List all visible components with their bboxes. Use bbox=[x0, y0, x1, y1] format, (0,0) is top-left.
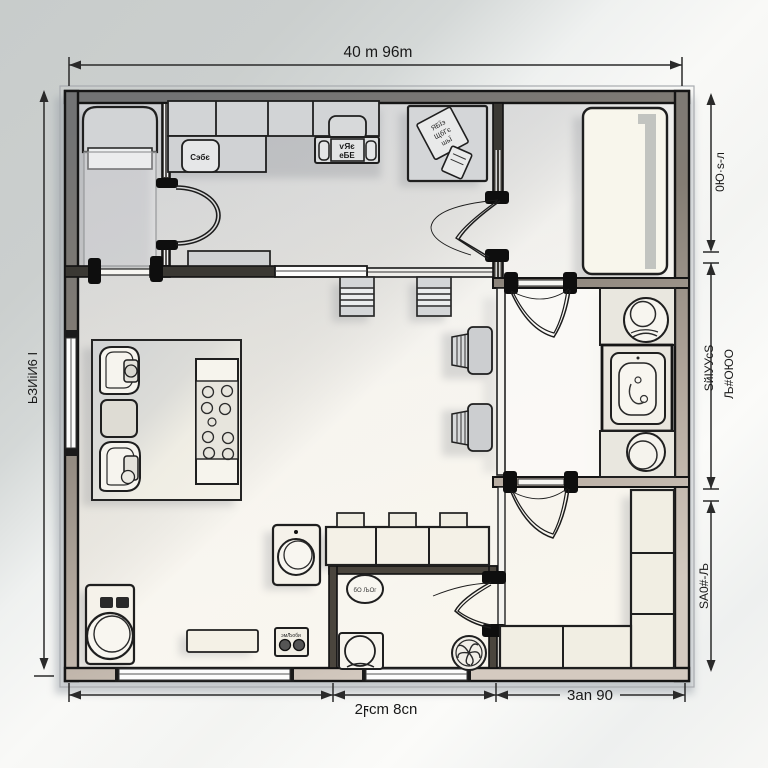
svg-text:ЅА0#-Љ: ЅА0#-Љ bbox=[697, 563, 711, 609]
svg-text:Љ#ОЮО: Љ#ОЮО bbox=[722, 349, 736, 399]
svg-text:0Ю·ѕ-л: 0Ю·ѕ-л bbox=[713, 152, 727, 192]
svg-text:ѵЯє: ѵЯє bbox=[339, 142, 355, 151]
svg-text:ЅйІУУсЅ: ЅйІУУсЅ bbox=[702, 345, 716, 392]
svg-text:бО ЉОг: бО ЉОг bbox=[354, 588, 378, 594]
svg-text:3an 90: 3an 90 bbox=[567, 687, 613, 704]
svg-text:эмЉоби: эмЉоби bbox=[281, 633, 301, 639]
svg-text:2ϝcm 8cn: 2ϝcm 8cn bbox=[355, 701, 418, 718]
svg-text:Сͽбє: Сͽбє bbox=[190, 153, 210, 162]
svg-text:40 m 96m: 40 m 96m bbox=[344, 44, 413, 61]
svg-text:ЬЗИіИ6 І: ЬЗИіИ6 І bbox=[25, 352, 40, 404]
svg-text:еБЕ: еБЕ bbox=[339, 151, 355, 160]
